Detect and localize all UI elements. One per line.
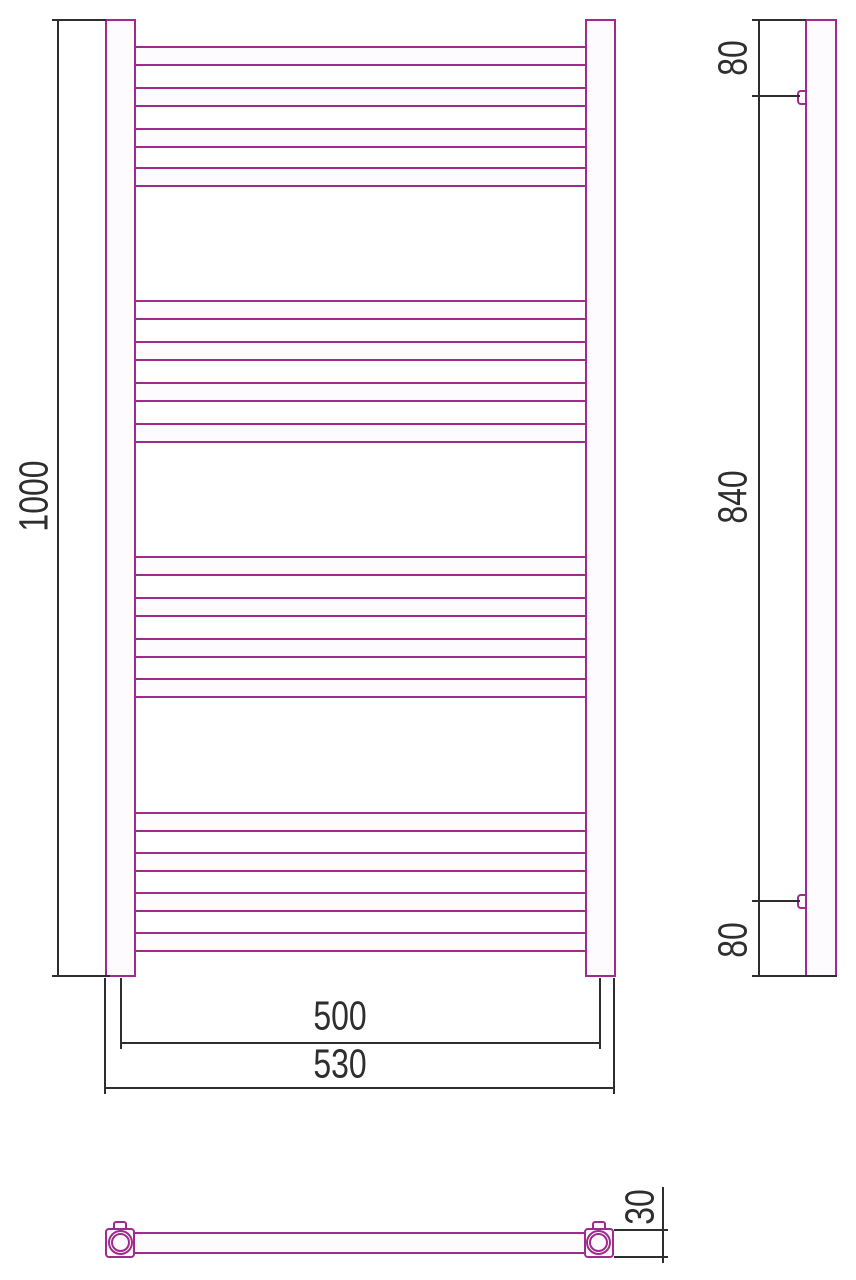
dim-bracket-spacing-label: 840 bbox=[713, 470, 754, 523]
rung-tube bbox=[134, 300, 587, 320]
rung-tube bbox=[134, 382, 587, 402]
bottom-view-crossbar bbox=[133, 1232, 587, 1254]
rung-tube bbox=[134, 638, 587, 658]
dim-500-ext-left bbox=[120, 978, 122, 1049]
dim-30-tick-top bbox=[614, 1229, 668, 1231]
dim-500-label: 500 bbox=[313, 996, 366, 1037]
left-fitting-circle-inner bbox=[111, 1233, 130, 1252]
dim-500-ext-right bbox=[599, 978, 601, 1049]
rung-tube bbox=[134, 932, 587, 952]
dim-side-tick-bottom bbox=[752, 975, 837, 977]
right-fitting-circle-inner bbox=[589, 1233, 608, 1252]
rung-tube bbox=[134, 892, 587, 912]
rung-tube bbox=[134, 46, 587, 66]
dim-height-label: 1000 bbox=[14, 460, 55, 531]
rung-tube bbox=[134, 597, 587, 617]
drawing-sheet: 1000 500 530 80 840 80 bbox=[0, 0, 856, 1280]
rung-tube bbox=[134, 341, 587, 361]
dim-530-ext-left bbox=[104, 978, 106, 1094]
dim-bottom-offset-label: 80 bbox=[713, 922, 754, 958]
rung-tube bbox=[134, 852, 587, 872]
dim-530-ext-right bbox=[613, 978, 615, 1094]
dim-30-tick-bottom bbox=[614, 1256, 668, 1258]
right-rail-tube bbox=[585, 19, 616, 977]
left-rail-tube bbox=[105, 19, 136, 977]
dim-height-line bbox=[57, 19, 59, 977]
dim-depth-label: 30 bbox=[620, 1189, 661, 1225]
dim-side-tick-top bbox=[752, 19, 806, 21]
dim-530-line bbox=[104, 1087, 615, 1089]
dim-side-tick-lower-bracket bbox=[752, 900, 800, 902]
dim-side-line bbox=[758, 19, 760, 977]
rung-tube bbox=[134, 167, 587, 187]
dim-side-tick-upper-bracket bbox=[752, 95, 800, 97]
rung-tube bbox=[134, 423, 587, 443]
rung-tube bbox=[134, 556, 587, 576]
rung-tube bbox=[134, 812, 587, 832]
dim-530-label: 530 bbox=[313, 1044, 366, 1085]
dim-top-offset-label: 80 bbox=[713, 40, 754, 76]
side-profile-tube bbox=[805, 19, 837, 977]
dim-height-tick-top bbox=[52, 19, 106, 21]
rung-tube bbox=[134, 678, 587, 698]
rung-tube bbox=[134, 128, 587, 148]
dim-height-tick-bottom bbox=[52, 975, 110, 977]
rung-tube bbox=[134, 87, 587, 107]
